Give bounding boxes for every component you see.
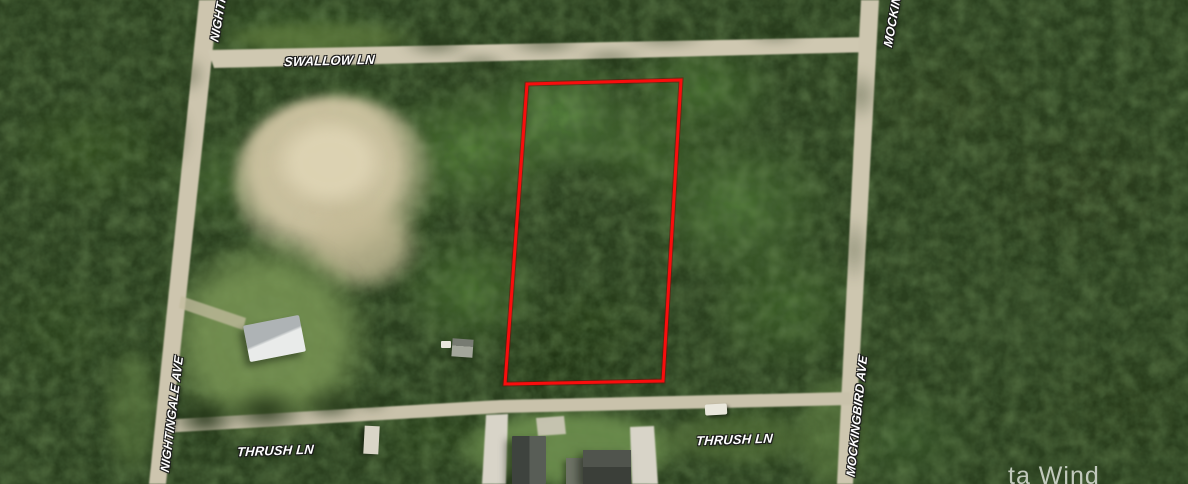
street-label-thrush-ln-east: THRUSH LN: [696, 432, 774, 449]
parcel-boundary: [505, 80, 681, 384]
watermark-text: ta Wind: [1008, 462, 1100, 484]
street-label-swallow-ln: SWALLOW LN: [283, 53, 375, 69]
parcel-boundary-halo: [505, 80, 681, 384]
street-label-thrush-ln-west: THRUSH LN: [237, 443, 315, 460]
satellite-map-viewport[interactable]: SWALLOW LN NIGHTINGALE AVE NIGHTINGALE A…: [0, 0, 1188, 484]
